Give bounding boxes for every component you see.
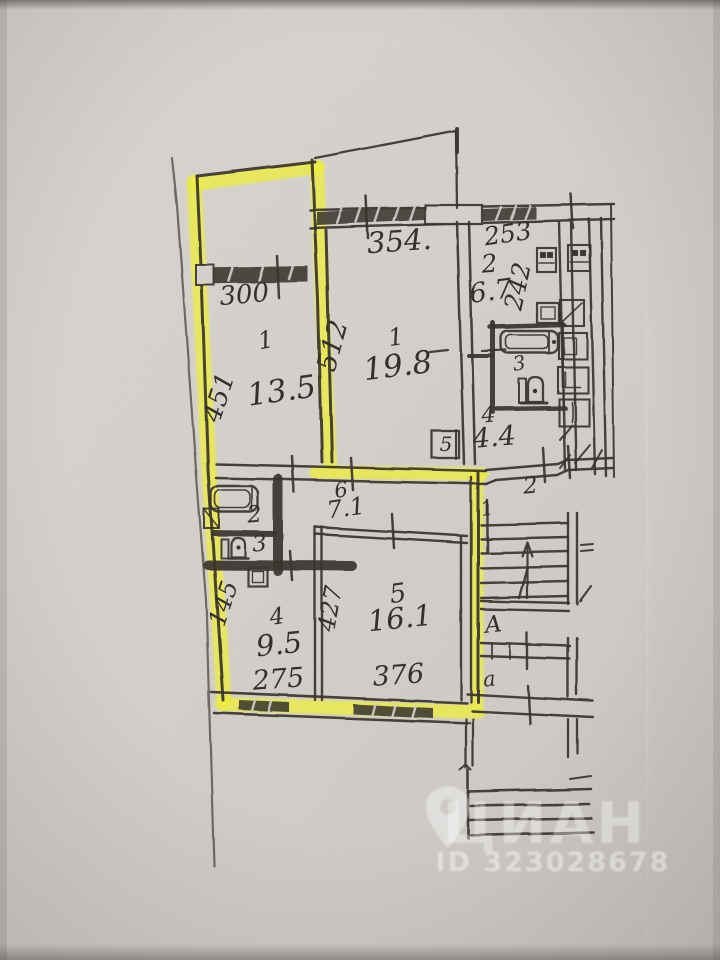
- shadow-left: [0, 0, 7, 960]
- shadow-top: [0, 0, 720, 10]
- floorplan-photo: 300 451 1 13.5 354. 512 1 19.8 253 2 6.7…: [0, 0, 720, 960]
- shadow-bottom: [0, 944, 720, 960]
- floorplan-canvas: 300 451 1 13.5 354. 512 1 19.8 253 2 6.7…: [0, 0, 720, 960]
- shadow-right: [713, 0, 720, 960]
- cian-watermark: ЦИАН ID 323028678: [426, 786, 670, 878]
- watermark-id: ID 323028678: [436, 847, 671, 878]
